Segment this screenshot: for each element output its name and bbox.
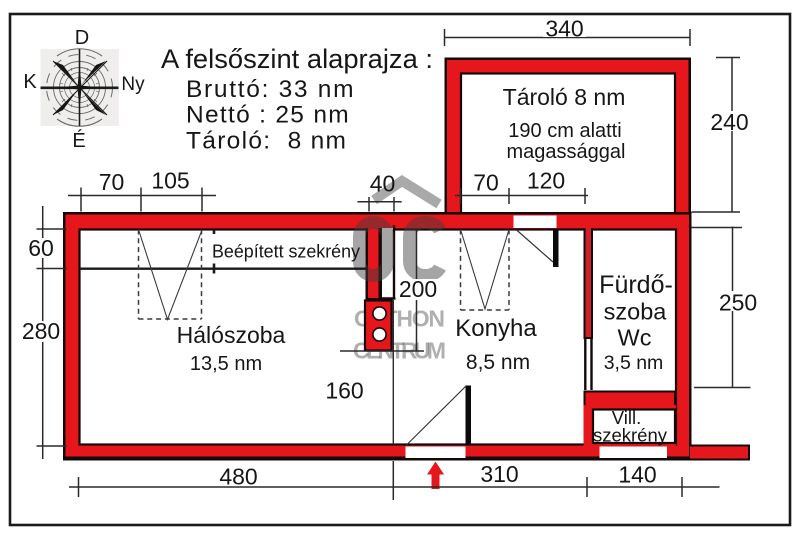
svg-text:Tároló 8 nm: Tároló 8 nm [503,84,626,110]
svg-text:480: 480 [219,464,257,490]
svg-text:Tároló: 8 nm: Tároló: 8 nm [186,128,347,155]
svg-text:70: 70 [473,170,499,196]
svg-text:60: 60 [28,235,54,261]
svg-text:250: 250 [719,290,757,316]
svg-text:Ny: Ny [121,74,145,95]
svg-text:É: É [72,129,85,152]
svg-text:Nettó : 25 nm: Nettó : 25 nm [186,102,350,129]
svg-text:3,5 nm: 3,5 nm [604,352,664,374]
svg-text:szekrény: szekrény [593,425,668,446]
svg-text:Konyha: Konyha [455,315,537,342]
svg-text:240: 240 [710,109,748,135]
svg-text:Beépített szekrény: Beépített szekrény [212,242,361,262]
svg-text:Wc: Wc [618,325,652,351]
svg-text:160: 160 [325,378,363,404]
svg-text:70: 70 [99,169,125,195]
svg-text:K: K [23,71,37,93]
svg-text:200: 200 [399,276,437,302]
svg-text:Bruttó: 33 nm: Bruttó: 33 nm [186,76,355,103]
svg-text:310: 310 [480,461,518,487]
svg-text:190 cm alatti: 190 cm alatti [508,120,621,142]
svg-text:Fürdő-: Fürdő- [599,271,673,299]
svg-text:8,5 nm: 8,5 nm [466,351,530,374]
svg-text:120: 120 [527,168,565,194]
svg-text:13,5 nm: 13,5 nm [190,353,262,375]
svg-text:Hálószoba: Hálószoba [177,322,286,348]
svg-text:szoba: szoba [604,299,668,325]
svg-text:D: D [75,27,89,49]
svg-text:140: 140 [618,462,656,488]
svg-text:105: 105 [151,168,189,194]
svg-text:340: 340 [545,16,583,42]
svg-text:A felsőszint alaprajza :: A felsőszint alaprajza : [161,43,433,74]
svg-text:280: 280 [22,318,60,344]
svg-text:magassággal: magassággal [507,141,626,163]
svg-text:40: 40 [370,171,396,197]
